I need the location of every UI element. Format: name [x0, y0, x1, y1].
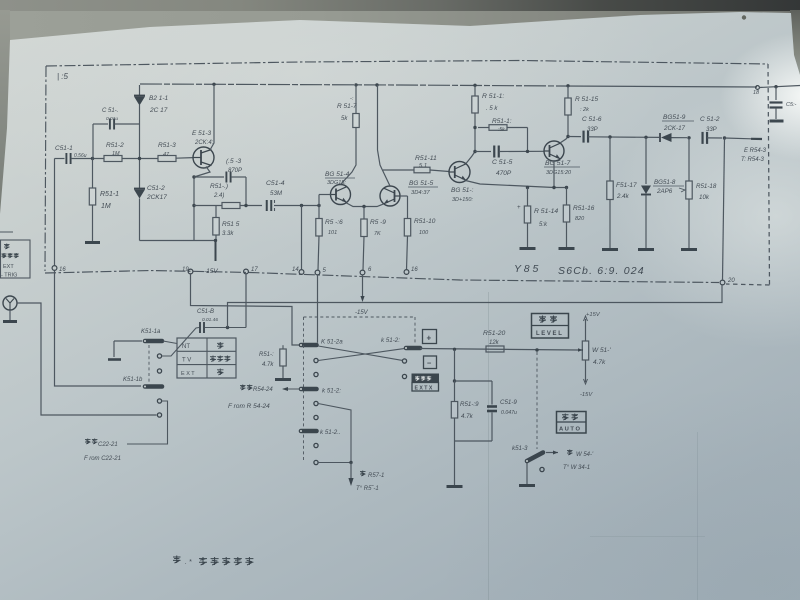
svg-text:+15V: +15V [586, 312, 601, 318]
svg-text:C 51-.: C 51-. [102, 108, 118, 114]
svg-text:S6Cb. 6:9. 024: S6Cb. 6:9. 024 [558, 265, 645, 277]
svg-text:53M: 53M [270, 190, 283, 197]
svg-text:| :5: | :5 [57, 72, 69, 81]
svg-text:F51-17: F51-17 [616, 182, 637, 189]
svg-text:F rom C22-21: F rom C22-21 [84, 456, 121, 462]
svg-text:T° W 34-1: T° W 34-1 [563, 465, 590, 471]
svg-text:k51-3: k51-3 [512, 445, 528, 452]
svg-text:k 51-2:: k 51-2: [381, 337, 400, 344]
svg-text:−: − [427, 359, 432, 368]
svg-text:C 51-5: C 51-5 [492, 159, 513, 166]
svg-text:+: + [427, 334, 432, 343]
svg-text:R51-2: R51-2 [106, 142, 124, 149]
svg-text:10k: 10k [699, 194, 710, 201]
svg-text:0.01u: 0.01u [106, 116, 118, 122]
svg-text:R51-11: R51-11 [415, 155, 437, 162]
svg-text:33P: 33P [706, 127, 717, 133]
svg-text:-15V: -15V [204, 268, 218, 275]
svg-text:33P: 33P [587, 127, 598, 133]
svg-text:BG51-8: BG51-8 [654, 179, 676, 186]
svg-text:(.5 -3: (.5 -3 [226, 158, 242, 165]
svg-text:R 51-7: R 51-7 [337, 103, 357, 110]
svg-text:E X T X: E X T X [415, 386, 433, 392]
svg-text:3D4:37: 3D4:37 [411, 190, 430, 196]
svg-text:6: 6 [368, 267, 372, 273]
svg-text:3.3k: 3.3k [222, 231, 234, 237]
svg-text:R51-:: R51-: [259, 352, 274, 358]
svg-text:R51-.): R51-.) [210, 183, 228, 190]
svg-text:: 2k: : 2k [580, 107, 589, 113]
svg-text:47: 47 [163, 152, 170, 158]
svg-text:K51-1b: K51-1b [123, 377, 143, 383]
svg-text:BG 51-4: BG 51-4 [325, 171, 350, 178]
svg-text:7K: 7K [374, 231, 381, 237]
svg-text:k 51-2:: k 51-2: [322, 388, 341, 395]
svg-text:19: 19 [182, 267, 189, 273]
svg-text:4.7k: 4.7k [461, 413, 474, 420]
svg-text:R51-3: R51-3 [158, 142, 176, 149]
svg-text:T V: T V [182, 358, 191, 364]
svg-text:1M: 1M [101, 203, 111, 210]
svg-text:BG 51-:: BG 51-: [451, 187, 474, 194]
svg-text:W 51-': W 51-' [592, 347, 611, 354]
svg-text:E X T: E X T [181, 371, 195, 377]
svg-text:14: 14 [292, 267, 299, 273]
svg-text:R51-1: R51-1 [100, 191, 119, 198]
svg-text:0.01.46: 0.01.46 [202, 317, 218, 323]
svg-text:C51-B: C51-B [197, 309, 214, 315]
svg-text:F rom R 54-24: F rom R 54-24 [228, 403, 270, 410]
svg-text:18: 18 [753, 90, 760, 96]
svg-text:k 51-2..: k 51-2.. [320, 429, 341, 436]
svg-text:2CK:4:: 2CK:4: [194, 140, 214, 146]
svg-text:C5:-: C5:- [786, 102, 797, 108]
svg-text:16: 16 [59, 267, 66, 273]
svg-text:470P: 470P [496, 170, 512, 177]
svg-text:K51-1a: K51-1a [141, 329, 161, 335]
svg-text:T° R5˝-1: T° R5˝-1 [356, 486, 379, 492]
svg-text:-15V: -15V [355, 310, 369, 316]
svg-text:R5 -9: R5 -9 [370, 219, 386, 226]
svg-text:. *: . * [185, 559, 192, 566]
svg-text:C51-4: C51-4 [266, 180, 285, 187]
svg-text:5:k: 5:k [539, 222, 548, 228]
svg-text:5k: 5k [341, 116, 348, 122]
svg-text:C22-21: C22-21 [98, 442, 118, 448]
svg-text:+: + [517, 205, 521, 211]
svg-text:2C 17: 2C 17 [149, 107, 168, 114]
svg-text:100: 100 [419, 230, 429, 236]
svg-text:R51-1:: R51-1: [492, 118, 512, 125]
svg-text:C51-1: C51-1 [55, 145, 73, 152]
svg-text:0.56u: 0.56u [74, 153, 87, 159]
svg-text:12k: 12k [489, 340, 500, 346]
svg-text:-15V: -15V [580, 392, 593, 398]
svg-text:C 51-6: C 51-6 [582, 116, 602, 123]
svg-text:C 51-2: C 51-2 [700, 116, 720, 123]
svg-text:E 51-3: E 51-3 [192, 130, 212, 137]
svg-text:17: 17 [251, 267, 258, 273]
svg-text:NT: NT [182, 344, 190, 350]
svg-text:3DG15:20: 3DG15:20 [546, 170, 572, 176]
svg-text:R 51-14: R 51-14 [534, 208, 558, 215]
svg-text:BG51-9: BG51-9 [663, 114, 686, 121]
svg-text:Y 8 5: Y 8 5 [514, 263, 538, 275]
svg-text:R51-20: R51-20 [483, 330, 506, 337]
svg-text:C51-2: C51-2 [147, 185, 165, 192]
svg-text:BG 51-7: BG 51-7 [545, 160, 571, 167]
svg-text:C51-9: C51-9 [500, 399, 517, 406]
svg-text:4.7k: 4.7k [593, 359, 606, 366]
svg-text:- TRIG: - TRIG [1, 273, 17, 279]
svg-text:R5 -:6: R5 -:6 [325, 219, 343, 226]
svg-text:5.1: 5.1 [419, 163, 427, 169]
svg-text:A U T O: A U T O [559, 427, 581, 433]
svg-text:R 51-1:: R 51-1: [482, 93, 504, 100]
svg-text:2.4k: 2.4k [616, 193, 630, 200]
svg-text:2AP6: 2AP6 [656, 188, 673, 195]
svg-text:16: 16 [411, 267, 418, 273]
svg-text:870P: 870P [228, 168, 242, 174]
svg-text:K 51-2a: K 51-2a [321, 339, 343, 346]
svg-text:W 54-': W 54-' [576, 452, 594, 458]
svg-text:R 51-15: R 51-15 [575, 96, 599, 103]
svg-text:R51-:9: R51-:9 [460, 401, 479, 408]
svg-text:20: 20 [727, 278, 735, 284]
svg-text:L E V E L: L E V E L [536, 331, 562, 337]
svg-text:-:: -: [350, 96, 354, 102]
svg-text:B2 1-1: B2 1-1 [149, 95, 169, 102]
svg-text:R51-18: R51-18 [696, 183, 717, 190]
svg-text:R57-1: R57-1 [368, 473, 384, 479]
svg-text:3D+150:: 3D+150: [452, 197, 473, 203]
svg-text:R51-10: R51-10 [414, 218, 436, 225]
svg-text:T: R54-3: T: R54-3 [741, 157, 765, 163]
svg-text:. 5 k: . 5 k [486, 106, 498, 112]
svg-text:2.4): 2.4) [213, 193, 224, 199]
svg-text:2CK17: 2CK17 [146, 194, 167, 201]
svg-text:5: 5 [323, 268, 327, 274]
svg-text:820: 820 [575, 216, 585, 222]
svg-text:R51 5: R51 5 [222, 221, 240, 228]
svg-text:E R54-3: E R54-3 [744, 148, 767, 154]
svg-text:R54-24: R54-24 [253, 387, 273, 393]
svg-text:101: 101 [328, 230, 337, 236]
svg-text:1M: 1M [112, 151, 120, 157]
svg-text:0.047u: 0.047u [501, 410, 517, 416]
svg-text::5k: :5k [498, 127, 505, 133]
svg-text:4.7k: 4.7k [262, 362, 274, 368]
svg-text:BG 51-5: BG 51-5 [409, 180, 434, 187]
svg-text:EXT: EXT [3, 264, 14, 270]
svg-text:R51-16: R51-16 [573, 205, 595, 212]
svg-text:2CK-17: 2CK-17 [663, 125, 686, 132]
